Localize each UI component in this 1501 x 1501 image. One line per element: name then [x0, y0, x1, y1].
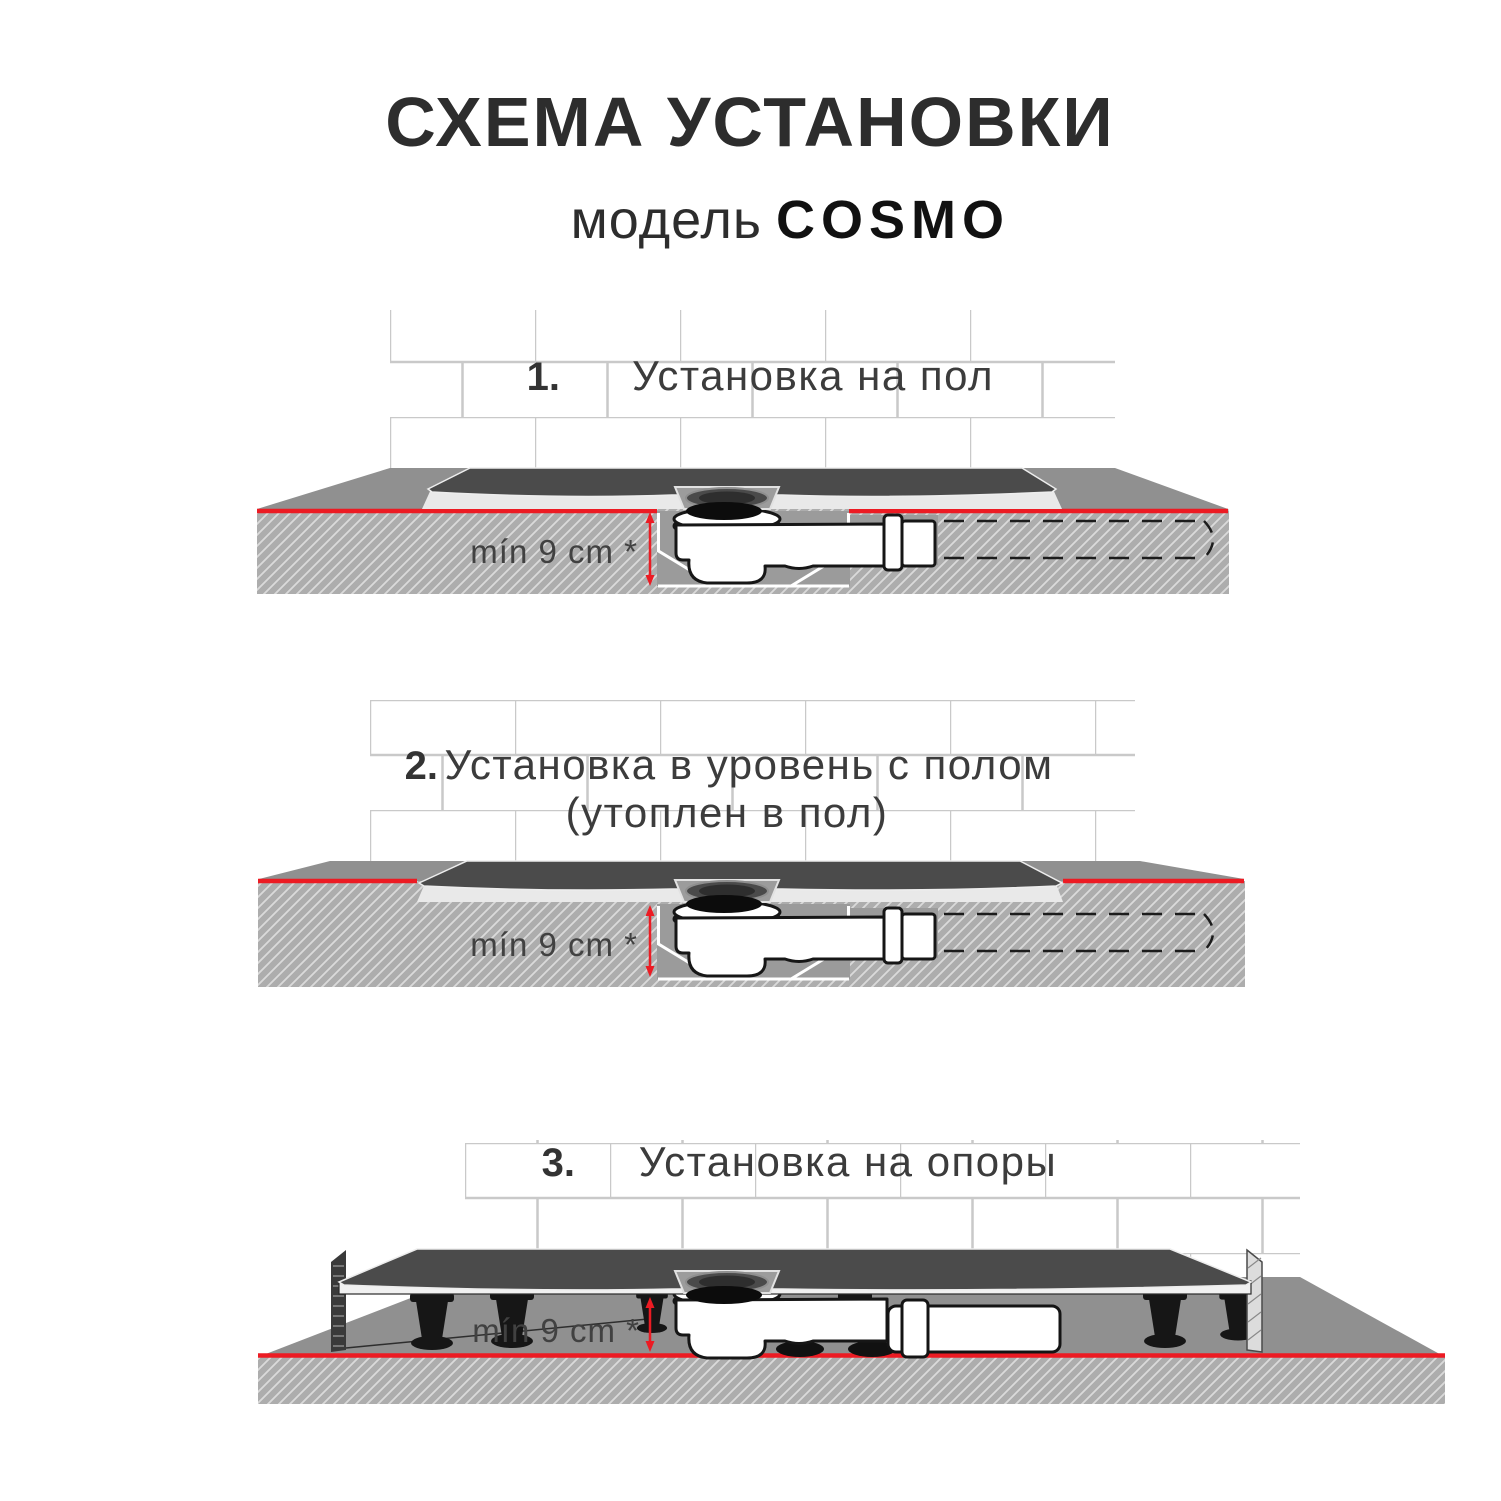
skirt-panel-left — [331, 1250, 346, 1352]
dimension-label: mín 9 cm * — [470, 533, 638, 570]
step-number: 1. — [527, 355, 560, 399]
model-label: модель — [571, 190, 762, 250]
floor-slab — [258, 1357, 1445, 1404]
diagram-step-1: 1. Установка на пол mín 9 cm * — [257, 310, 1229, 594]
dimension-label: mín 9 cm * — [470, 926, 638, 963]
installation-scheme-page: СХЕМА УСТАНОВКИ модель COSMO 1. Установк… — [0, 0, 1501, 1501]
dimension-label: mín 9 cm * — [472, 1312, 640, 1349]
skirt-panel-right — [1247, 1250, 1262, 1352]
diagram-step-2: 2. Установка в уровень с полом (утоплен … — [258, 700, 1245, 987]
step-subtitle: (утоплен в пол) — [566, 789, 889, 836]
shower-tray-top — [339, 1249, 1251, 1290]
step-number: 2. — [405, 744, 438, 788]
step-number: 3. — [542, 1141, 575, 1185]
diagram-step-3: 3. Установка на опоры — [258, 1138, 1445, 1404]
step-title: Установка в уровень с полом — [445, 741, 1054, 788]
step-title: Установка на опоры — [639, 1138, 1057, 1185]
model-name: COSMO — [776, 190, 1010, 250]
drain-pipe-stub — [884, 515, 935, 570]
pipe-coupling — [902, 1300, 928, 1357]
page-title: СХЕМА УСТАНОВКИ — [385, 83, 1114, 161]
drain-pipe-stub — [884, 908, 935, 963]
installation-scheme-canvas: СХЕМА УСТАНОВКИ модель COSMO 1. Установк… — [0, 0, 1501, 1501]
step-title: Установка на пол — [632, 352, 994, 399]
